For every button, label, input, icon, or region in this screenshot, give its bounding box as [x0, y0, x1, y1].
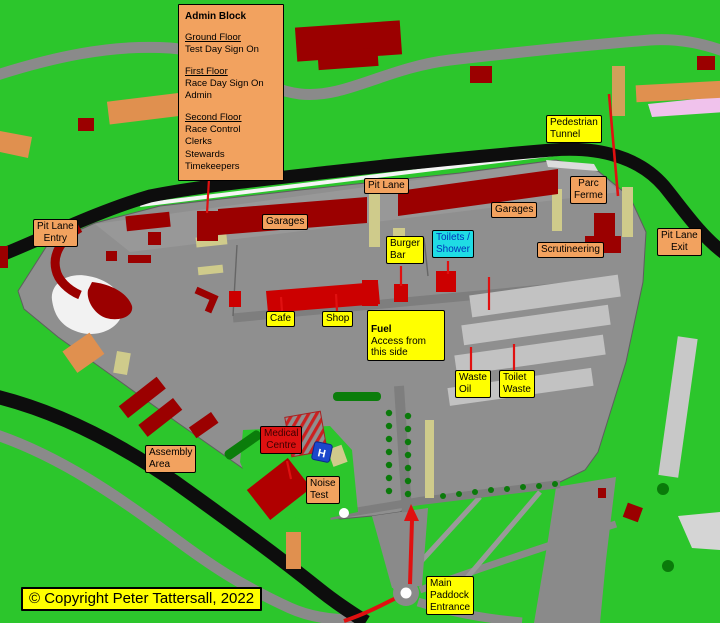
label-toilets-shower: Toilets / Shower	[432, 230, 474, 258]
admin-block-title: Admin Block	[185, 10, 277, 23]
label-garages-left: Garages	[262, 214, 308, 230]
hedge	[333, 392, 381, 401]
label-fuel: FuelAccess from this side	[367, 310, 445, 361]
admin-section-second-floor: Second Floor Race Control Clerks Steward…	[185, 112, 277, 174]
label-waste-oil: Waste Oil	[455, 370, 491, 398]
helipad-icon: H	[311, 441, 332, 462]
label-shop: Shop	[322, 311, 353, 327]
label-burger-bar: Burger Bar	[386, 236, 424, 264]
label-fuel-title: Fuel	[371, 324, 441, 336]
label-garages-right: Garages	[491, 202, 537, 218]
label-pit-lane-exit: Pit Lane Exit	[657, 228, 702, 256]
paddock-map-graphic: H	[0, 0, 720, 623]
label-pit-lane-entry: Pit Lane Entry	[33, 219, 78, 247]
circuit-paddock-map: H Admin Block Ground Floor Test Day Sign…	[0, 0, 720, 623]
label-fuel-text: Access from this side	[371, 336, 426, 359]
parc-ferme-building	[594, 213, 615, 240]
label-toilet-waste: Toilet Waste	[499, 370, 535, 398]
label-main-paddock-entrance: Main Paddock Entrance	[426, 576, 474, 615]
toilets-building	[436, 271, 456, 292]
label-scrutineering: Scrutineering	[537, 242, 604, 258]
admin-section-first-floor: First Floor Race Day Sign On Admin	[185, 66, 277, 103]
label-medical-centre: Medical Centre	[260, 426, 302, 454]
copyright-banner: © Copyright Peter Tattersall, 2022	[21, 587, 262, 611]
label-pit-lane: Pit Lane	[364, 178, 409, 194]
label-parc-ferme: Parc Ferme	[570, 176, 607, 204]
admin-section-ground-floor: Ground Floor Test Day Sign On	[185, 32, 277, 57]
label-assembly-area: Assembly Area	[145, 445, 196, 473]
admin-block-infobox: Admin Block Ground Floor Test Day Sign O…	[178, 4, 284, 181]
label-cafe: Cafe	[266, 311, 295, 327]
label-noise-test: Noise Test	[306, 476, 340, 504]
gas-holder	[339, 508, 349, 518]
burger-bar-building	[394, 284, 408, 302]
label-pedestrian-tunnel: Pedestrian Tunnel	[546, 115, 602, 143]
admin-building	[197, 211, 218, 241]
